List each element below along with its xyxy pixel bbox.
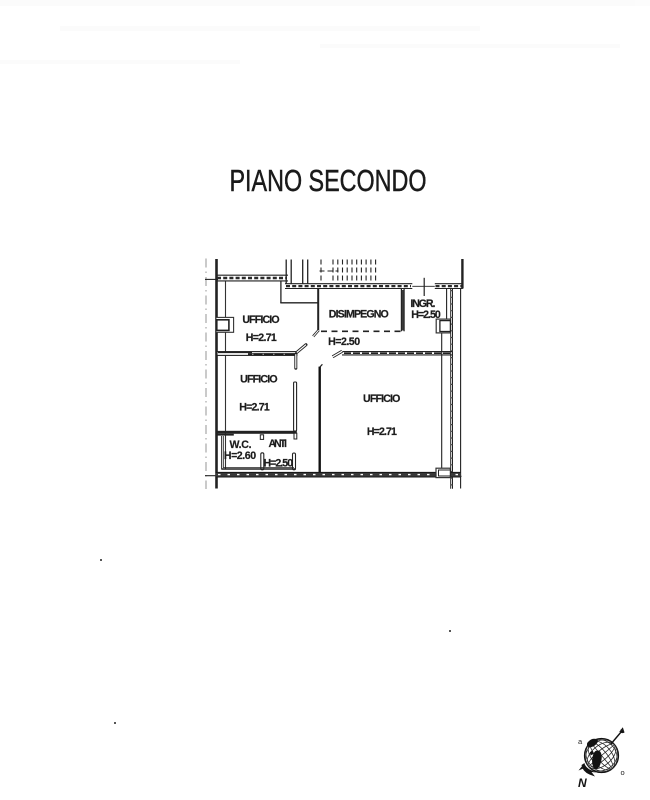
- svg-text:a: a: [620, 726, 625, 735]
- svg-text:H=2.71: H=2.71: [246, 332, 277, 344]
- svg-text:UFFICIO: UFFICIO: [242, 314, 279, 326]
- svg-text:H=2.50: H=2.50: [264, 457, 294, 469]
- svg-text:H=2.60: H=2.60: [224, 450, 256, 462]
- svg-text:H=2.50: H=2.50: [328, 336, 360, 348]
- svg-text:H=2.50: H=2.50: [411, 309, 441, 321]
- svg-text:o: o: [621, 768, 625, 777]
- svg-text:ANTI: ANTI: [268, 438, 287, 450]
- svg-text:PIANO SECONDO: PIANO SECONDO: [230, 163, 427, 198]
- svg-text:UFFICIO: UFFICIO: [240, 374, 278, 386]
- svg-text:UFFICIO: UFFICIO: [363, 393, 400, 405]
- svg-text:H=2.71: H=2.71: [367, 426, 397, 438]
- svg-text:a: a: [578, 737, 583, 746]
- svg-text:H=2.71: H=2.71: [239, 401, 270, 413]
- svg-text:INGR.: INGR.: [410, 298, 435, 310]
- svg-text:N: N: [578, 776, 587, 790]
- svg-text:DISIMPEGNO: DISIMPEGNO: [329, 308, 389, 320]
